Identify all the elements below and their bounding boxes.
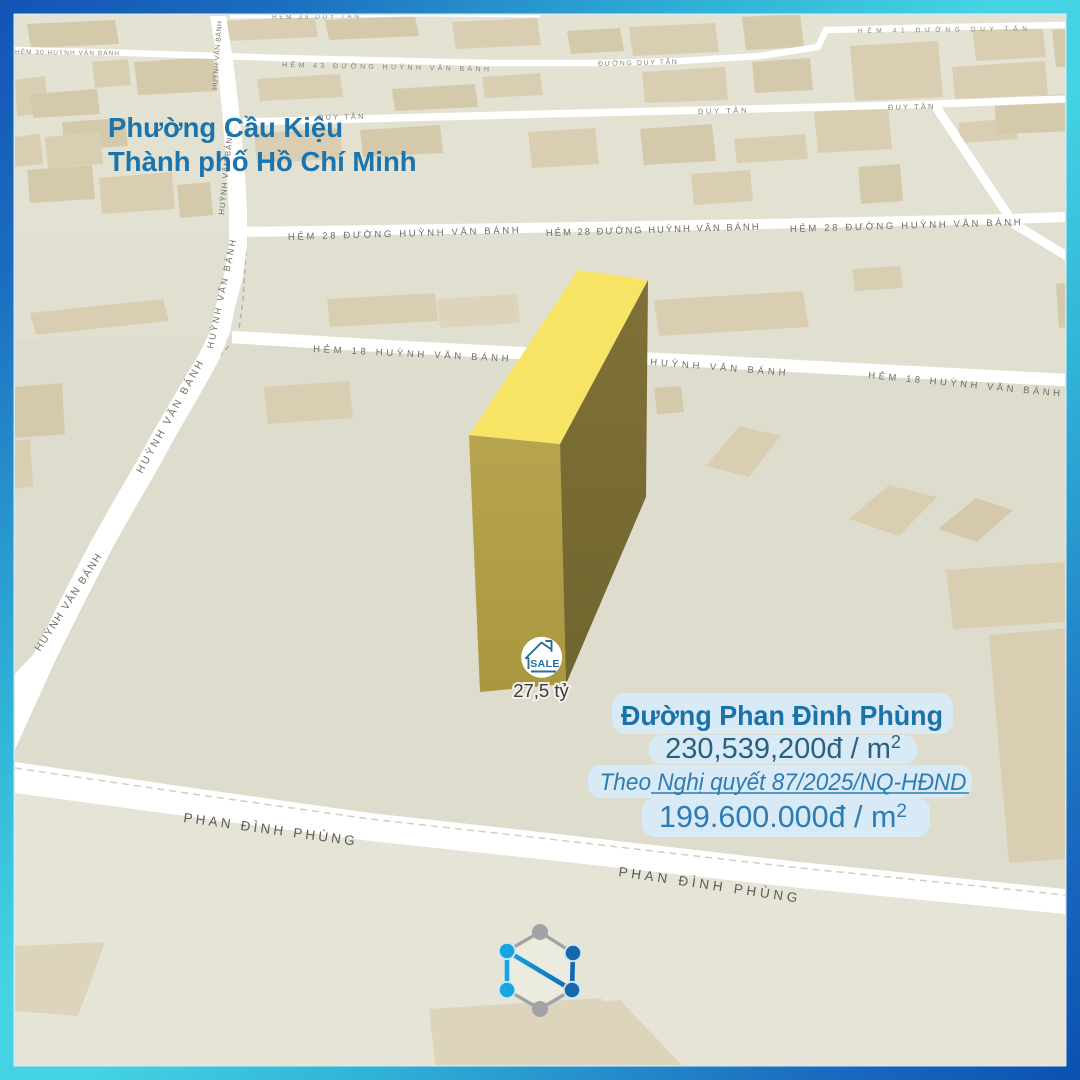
svg-text:199.600.000đ / m2: 199.600.000đ / m2 xyxy=(659,800,907,834)
svg-text:SALE: SALE xyxy=(530,658,560,670)
svg-text:ĐUY TÂN: ĐUY TÂN xyxy=(888,102,935,112)
svg-text:Phường Cầu Kiệu: Phường Cầu Kiệu xyxy=(108,112,343,143)
svg-text:27,5 tỷ: 27,5 tỷ xyxy=(513,680,569,701)
svg-text:230,539,200đ / m2: 230,539,200đ / m2 xyxy=(665,732,901,765)
svg-text:Thành phố Hồ Chí Minh: Thành phố Hồ Chí Minh xyxy=(108,146,417,177)
svg-text:Đường Phan Đình Phùng: Đường Phan Đình Phùng xyxy=(621,700,943,731)
svg-text:DUY TÂN: DUY TÂN xyxy=(698,106,748,116)
svg-text:Theo Nghị quyết 87/2025/NQ-HĐN: Theo Nghị quyết 87/2025/NQ-HĐND xyxy=(600,769,967,796)
